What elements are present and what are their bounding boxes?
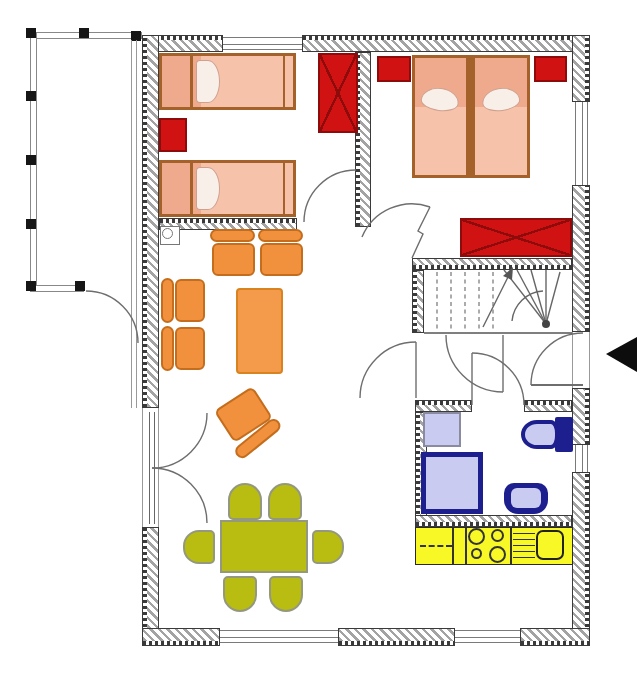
- french-door-arcs: [152, 413, 207, 523]
- wall-kitchen-back: [415, 515, 572, 527]
- sofa-backrest: [210, 229, 255, 242]
- window-bedroom2: [575, 102, 588, 185]
- dining-chair: [223, 576, 257, 612]
- railing-post: [26, 91, 36, 101]
- toilet-bowl: [521, 420, 559, 449]
- wall-bottom: [142, 628, 220, 646]
- living-hall-door: [360, 342, 416, 398]
- bed-center-rail: [466, 58, 475, 175]
- sofa-seat: [175, 279, 205, 322]
- wall-top: [302, 35, 590, 52]
- entrance-arrow-icon: [606, 337, 637, 372]
- bedroom1-door-arc: [304, 170, 356, 222]
- washing-machine: [423, 412, 461, 447]
- counter-joint: [510, 528, 512, 564]
- stair-door: [446, 335, 503, 392]
- railing-post: [79, 28, 89, 38]
- staircase: [424, 267, 572, 333]
- window-kitchen: [455, 630, 520, 643]
- dining-chair: [183, 530, 215, 564]
- pillow: [196, 60, 220, 103]
- pillow: [420, 86, 461, 113]
- wardrobe-bedroom2: [460, 218, 572, 257]
- pillow: [196, 167, 220, 210]
- wall-right: [572, 472, 590, 646]
- railing-post: [26, 219, 36, 229]
- cabinet-left-of-bed: [377, 56, 411, 82]
- hall-shelf: [160, 226, 180, 245]
- counter-joint: [452, 528, 454, 564]
- floor-plan: [0, 0, 640, 683]
- bed-single-1: [159, 53, 296, 110]
- dining-table: [220, 520, 308, 573]
- pillow: [481, 86, 522, 113]
- sofa-seat: [212, 243, 255, 276]
- dining-chair: [228, 483, 262, 520]
- railing-post: [26, 155, 36, 165]
- kitchen-sink-basin: [536, 530, 564, 560]
- window-bedroom1: [223, 37, 302, 50]
- coffee-table: [236, 288, 283, 374]
- basin-inner: [511, 488, 541, 508]
- railing-post: [26, 281, 36, 291]
- bed-headboard-line: [190, 163, 193, 214]
- front-door-opening: [572, 332, 590, 388]
- hob-burner: [491, 529, 504, 542]
- sofa-seat: [260, 243, 303, 276]
- nightstand: [159, 118, 187, 152]
- hob-burner: [468, 528, 485, 545]
- wall-stair-west: [412, 270, 424, 333]
- window-dining: [220, 630, 338, 643]
- wash-basin: [504, 483, 548, 514]
- dining-chair: [312, 530, 344, 564]
- wall-bath-north-a: [415, 400, 472, 412]
- wall-right: [572, 388, 590, 445]
- wardrobe-bedroom1: [318, 53, 358, 133]
- counter-joint: [465, 528, 467, 564]
- shower: [421, 452, 483, 514]
- shelf-circle: [162, 228, 173, 239]
- sofa-backrest: [161, 326, 174, 371]
- dining-chair: [268, 483, 302, 520]
- wall-bottom: [338, 628, 455, 646]
- sofa-seat: [175, 327, 205, 370]
- bed-headboard-line: [190, 56, 193, 107]
- sofa-backrest: [258, 229, 303, 242]
- cabinet-right-of-bed: [534, 56, 567, 82]
- armchair: [210, 381, 291, 461]
- wall-right: [572, 185, 590, 332]
- bed-foot-line: [283, 56, 285, 107]
- bed-single-2: [159, 160, 296, 217]
- stair-direction-line: [483, 271, 511, 327]
- sink-drainer-lines: [513, 533, 535, 561]
- railing-post: [26, 28, 36, 38]
- dining-chair: [269, 576, 303, 612]
- stair-newel: [542, 320, 550, 328]
- window-bathroom: [575, 445, 588, 472]
- bed-foot-line: [283, 163, 285, 214]
- hob-burner: [489, 546, 506, 563]
- wall-left: [142, 35, 159, 408]
- french-door-leaves: [149, 412, 155, 524]
- sofa-backrest: [161, 278, 174, 323]
- railing-post: [75, 281, 85, 291]
- wall-face-line: [131, 40, 137, 408]
- wall-right: [572, 35, 590, 102]
- wall-bottom: [520, 628, 590, 646]
- bathroom-door: [472, 353, 524, 405]
- wall-bath-north-b: [524, 400, 572, 412]
- counter-dash-line: [420, 545, 452, 547]
- bedroom2-door: [362, 204, 430, 258]
- hob-burner: [471, 548, 482, 559]
- bed-double: [412, 55, 530, 178]
- wall-stair-north: [412, 258, 572, 270]
